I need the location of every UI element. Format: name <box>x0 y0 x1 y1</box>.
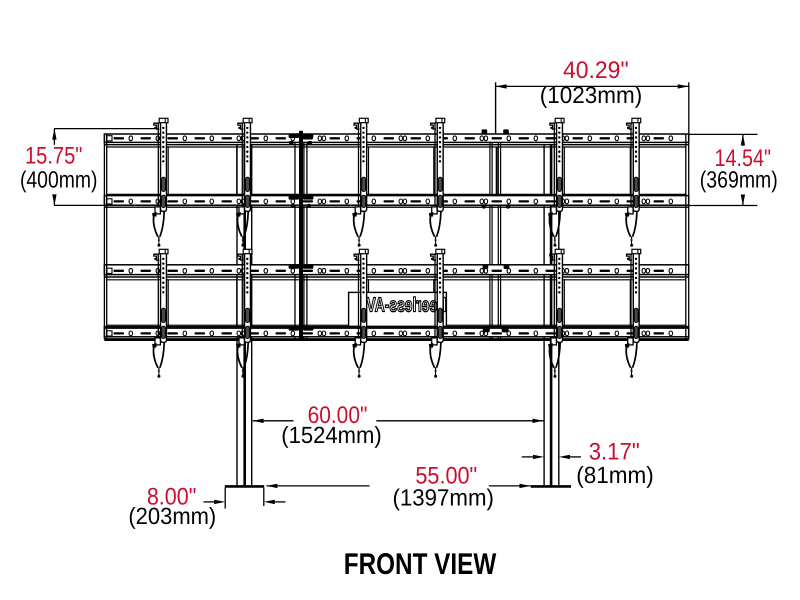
svg-text:(400mm): (400mm) <box>20 167 98 193</box>
svg-text:(369mm): (369mm) <box>700 167 778 193</box>
svg-text:(1524mm): (1524mm) <box>281 422 382 448</box>
svg-text:(1397mm): (1397mm) <box>392 484 494 510</box>
svg-text:(81mm): (81mm) <box>576 462 654 488</box>
svg-text:15.75": 15.75" <box>25 143 83 170</box>
svg-text:40.29": 40.29" <box>563 57 629 84</box>
svg-text:FRONT VIEW: FRONT VIEW <box>344 548 497 581</box>
svg-text:(203mm): (203mm) <box>128 503 216 529</box>
svg-text:(1023mm): (1023mm) <box>540 82 643 108</box>
